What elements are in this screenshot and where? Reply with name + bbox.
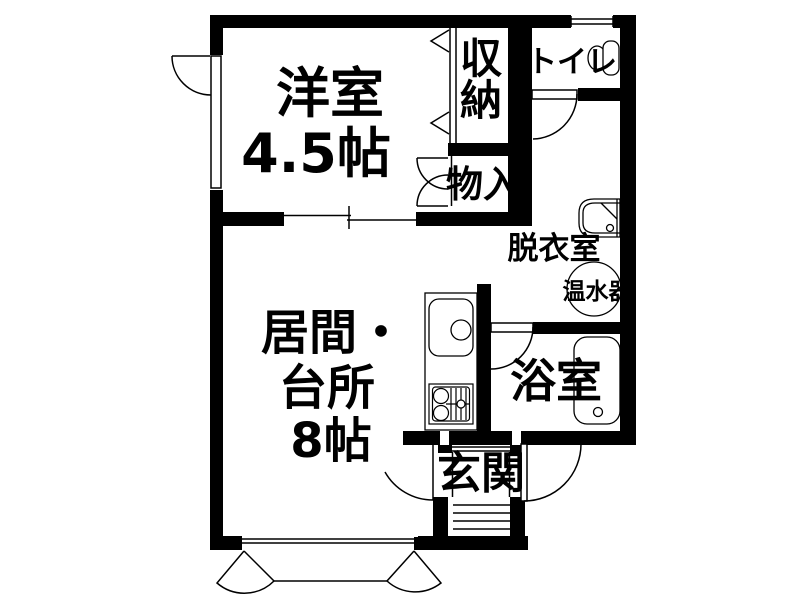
label-shuno: 収納 — [454, 36, 503, 120]
wall-room-divider-right — [416, 212, 532, 226]
door-swing-genkan-west — [385, 445, 433, 500]
kitchen-stove — [429, 384, 473, 424]
door-swing-entrance — [524, 444, 581, 501]
stove-burner — [434, 389, 449, 404]
door-leaf-bath — [491, 323, 533, 332]
wall-kitchen-dressing — [477, 284, 491, 445]
wall-right — [620, 15, 636, 445]
genkan-flank-right — [510, 497, 525, 536]
label-toire: トイレ — [527, 45, 617, 80]
label-genkan: 玄関 — [437, 448, 525, 499]
entrance-steps — [453, 505, 510, 529]
sliding-door-yoshitsu — [284, 206, 416, 229]
label-ima: 居間・ — [261, 305, 405, 361]
sink-faucet — [451, 320, 471, 340]
wall-room-divider-left — [223, 212, 284, 226]
genkan-wall-bottom — [418, 536, 528, 550]
door-leaf-toilet — [532, 90, 577, 99]
label-yokushitsu: 浴室 — [510, 354, 602, 408]
window-toilet-top — [571, 16, 613, 27]
label-datsuishitsu: 脱衣室 — [508, 231, 601, 267]
label-daidokoro: 台所 — [279, 360, 375, 416]
wall-bottom-right-a — [403, 431, 440, 445]
wall-closet-divider — [448, 143, 508, 156]
wall-living-bottom-left — [210, 536, 242, 550]
floorplan-drawing: 洋室 4.5帖 収納 トイレ 物入 脱衣室 温水器 居間・ 台所 8帖 浴室 玄… — [0, 0, 800, 600]
window-yoshitsu-left — [211, 56, 221, 188]
window-swing-yoshitsu — [172, 56, 211, 95]
washbasin-drain — [607, 225, 614, 232]
wall-left-main — [210, 190, 223, 550]
bifold-door-shuno — [431, 28, 456, 143]
wall-left-upper — [210, 15, 223, 55]
stove-burner-small — [457, 400, 465, 408]
bathtub-drain — [594, 408, 603, 417]
label-onsuiki: 温水器 — [563, 279, 633, 305]
window-living-south — [217, 539, 441, 593]
wall-top-left — [210, 15, 571, 28]
label-yoshitsu: 洋室 — [276, 62, 384, 125]
wall-toilet-south — [578, 88, 620, 101]
label-yoshitsu-size: 4.5帖 — [241, 122, 391, 185]
door-swing-toilet — [533, 94, 577, 139]
label-monoire: 物入 — [446, 163, 520, 206]
floorplan-canvas: 洋室 4.5帖 収納 トイレ 物入 脱衣室 温水器 居間・ 台所 8帖 浴室 玄… — [0, 0, 800, 600]
kitchen-sink — [429, 299, 473, 356]
label-ima-size: 8帖 — [290, 413, 371, 469]
wall-bottom-right-c — [521, 431, 636, 445]
wall-bath-north — [533, 322, 620, 334]
stove-burner — [434, 406, 449, 421]
